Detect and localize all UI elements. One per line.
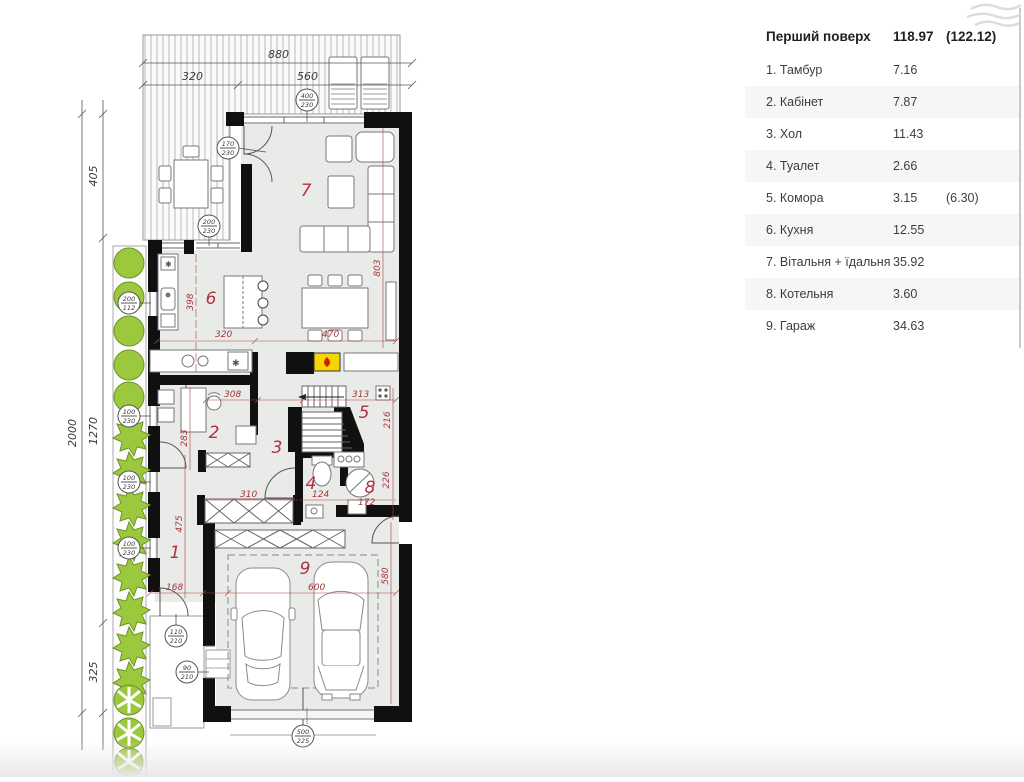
svg-text:500: 500 bbox=[297, 728, 309, 736]
svg-text:2000: 2000 bbox=[66, 419, 79, 447]
room-area-alt: (6.30) bbox=[946, 191, 1016, 205]
svg-text:226: 226 bbox=[382, 471, 392, 488]
svg-text:✱: ✱ bbox=[165, 260, 172, 269]
svg-text:283: 283 bbox=[180, 429, 190, 446]
room-area: 12.55 bbox=[893, 223, 946, 237]
svg-text:230: 230 bbox=[123, 417, 135, 425]
room-label: 8. Котельня bbox=[766, 287, 893, 301]
table-row: 1. Тамбур 7.16 bbox=[745, 54, 1022, 86]
svg-text:9: 9 bbox=[300, 559, 311, 579]
bottom-gradient bbox=[0, 741, 1024, 777]
svg-text:313: 313 bbox=[352, 390, 369, 400]
tree-round bbox=[114, 248, 144, 412]
svg-text:100: 100 bbox=[123, 408, 135, 416]
svg-text:230: 230 bbox=[222, 149, 234, 157]
svg-text:3: 3 bbox=[272, 438, 283, 458]
svg-text:1: 1 bbox=[170, 543, 181, 563]
svg-text:803: 803 bbox=[373, 259, 383, 276]
room-label: 1. Тамбур bbox=[766, 63, 893, 77]
svg-text:230: 230 bbox=[203, 227, 215, 235]
car bbox=[231, 568, 295, 700]
room-area: 3.15 bbox=[893, 191, 946, 205]
svg-text:600: 600 bbox=[308, 583, 325, 593]
floor-title: Перший поверх bbox=[766, 29, 893, 44]
room-area: 2.66 bbox=[893, 159, 946, 173]
watermark-logo-icon bbox=[963, 2, 1023, 34]
svg-text:560: 560 bbox=[297, 70, 318, 83]
room-label: 4. Туалет bbox=[766, 159, 893, 173]
kitchen-island bbox=[224, 276, 268, 328]
table-row: 2. Кабінет 7.87 bbox=[745, 86, 1022, 118]
svg-text:398: 398 bbox=[186, 293, 196, 310]
svg-text:110: 110 bbox=[170, 628, 182, 636]
svg-text:320: 320 bbox=[215, 330, 232, 340]
page: ✱ ✱ bbox=[0, 0, 1024, 777]
svg-text:470: 470 bbox=[322, 330, 339, 340]
svg-text:1270: 1270 bbox=[87, 417, 100, 445]
svg-text:100: 100 bbox=[123, 540, 135, 548]
table-right-border bbox=[1019, 8, 1021, 348]
room-area: 35.92 bbox=[893, 255, 946, 269]
svg-text:210: 210 bbox=[170, 637, 182, 645]
svg-text:400: 400 bbox=[301, 92, 313, 100]
svg-text:320: 320 bbox=[182, 70, 203, 83]
fireplace bbox=[314, 353, 398, 371]
room-label: 2. Кабінет bbox=[766, 95, 893, 109]
svg-text:8: 8 bbox=[365, 478, 376, 498]
svg-text:✱: ✱ bbox=[232, 359, 240, 369]
svg-text:168: 168 bbox=[166, 583, 183, 593]
room-label: 7. Вітальня + їдальня bbox=[766, 255, 893, 269]
svg-text:172: 172 bbox=[358, 498, 375, 508]
svg-text:5: 5 bbox=[359, 403, 370, 423]
svg-text:4: 4 bbox=[306, 474, 317, 494]
room-area: 7.87 bbox=[893, 95, 946, 109]
svg-text:308: 308 bbox=[224, 390, 241, 400]
table-row: 7. Вітальня + їдальня 35.92 bbox=[745, 246, 1022, 278]
svg-text:216: 216 bbox=[383, 411, 393, 428]
armchair bbox=[356, 132, 394, 162]
room-label: 3. Хол bbox=[766, 127, 893, 141]
svg-text:580: 580 bbox=[381, 567, 391, 584]
room-area: 11.43 bbox=[893, 127, 946, 141]
svg-text:230: 230 bbox=[123, 483, 135, 491]
svg-text:310: 310 bbox=[240, 490, 257, 500]
room-label: 6. Кухня bbox=[766, 223, 893, 237]
table-row: 5. Комора 3.15 (6.30) bbox=[745, 182, 1022, 214]
svg-text:200: 200 bbox=[203, 218, 215, 226]
floor-total-area: 118.97 bbox=[893, 29, 946, 44]
table-row: 8. Котельня 3.60 bbox=[745, 278, 1022, 310]
room-area: 7.16 bbox=[893, 63, 946, 77]
room-area: 34.63 bbox=[893, 319, 946, 333]
coffee-table bbox=[328, 176, 354, 208]
svg-text:405: 405 bbox=[87, 166, 100, 187]
svg-text:210: 210 bbox=[181, 673, 193, 681]
table-row: 9. Гараж 34.63 bbox=[745, 310, 1022, 342]
table-row: 6. Кухня 12.55 bbox=[745, 214, 1022, 246]
svg-text:112: 112 bbox=[123, 304, 135, 312]
svg-text:6: 6 bbox=[206, 289, 217, 309]
svg-text:7: 7 bbox=[301, 181, 312, 201]
svg-text:200: 200 bbox=[123, 295, 135, 303]
room-area: 3.60 bbox=[893, 287, 946, 301]
table-row: 4. Туалет 2.66 bbox=[745, 150, 1022, 182]
room-label: 5. Комора bbox=[766, 191, 893, 205]
svg-text:230: 230 bbox=[123, 549, 135, 557]
svg-text:170: 170 bbox=[222, 140, 234, 148]
svg-text:2: 2 bbox=[209, 423, 220, 443]
landscaping bbox=[113, 246, 150, 776]
sideboard bbox=[386, 282, 396, 340]
svg-text:475: 475 bbox=[175, 515, 185, 532]
svg-text:90: 90 bbox=[183, 664, 191, 672]
svg-text:230: 230 bbox=[301, 101, 313, 109]
svg-text:325: 325 bbox=[87, 662, 100, 683]
svg-text:100: 100 bbox=[123, 474, 135, 482]
area-table: Перший поверх 118.97 (122.12) 1. Тамбур … bbox=[745, 18, 1022, 342]
svg-text:880: 880 bbox=[268, 48, 289, 61]
room-label: 9. Гараж bbox=[766, 319, 893, 333]
table-row: 3. Хол 11.43 bbox=[745, 118, 1022, 150]
